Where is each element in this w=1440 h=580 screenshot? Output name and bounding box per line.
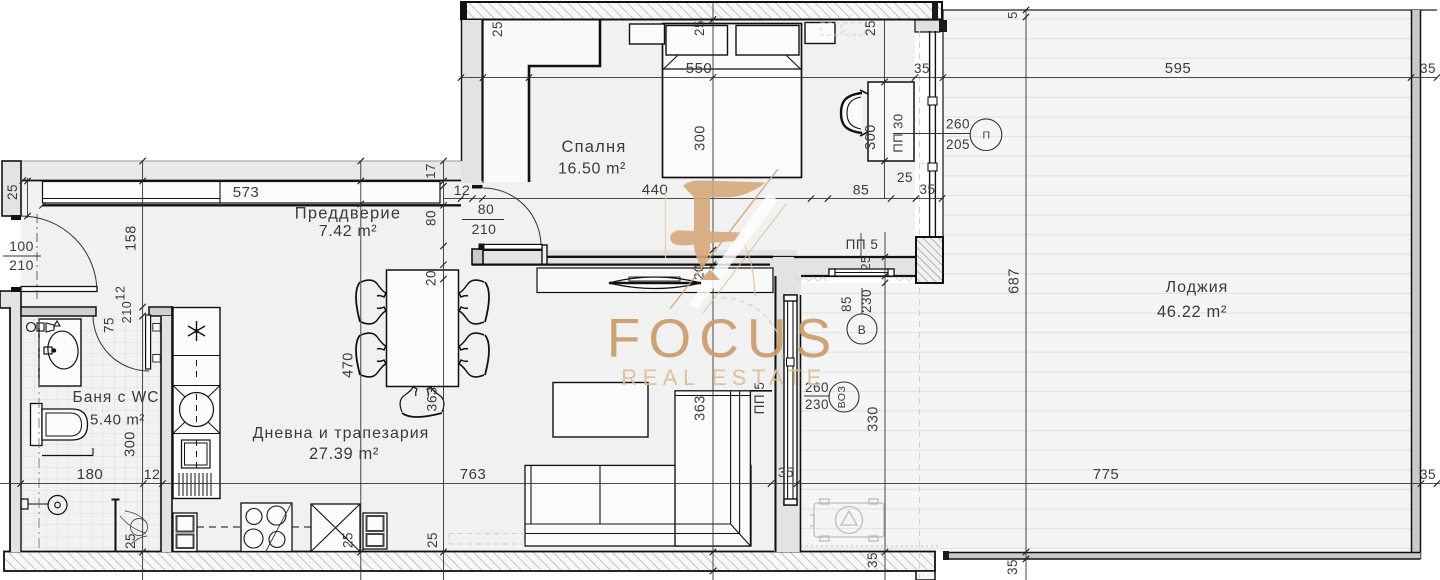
- svg-text:35: 35: [865, 552, 880, 568]
- svg-text:300: 300: [863, 124, 879, 150]
- svg-text:25: 25: [859, 256, 873, 271]
- svg-text:35: 35: [1420, 61, 1436, 76]
- svg-text:230: 230: [805, 397, 829, 412]
- svg-text:46.22 m²: 46.22 m²: [1157, 303, 1227, 321]
- svg-text:85: 85: [853, 182, 870, 198]
- svg-text:158: 158: [124, 225, 140, 251]
- svg-text:25: 25: [863, 20, 878, 36]
- svg-text:230: 230: [859, 289, 874, 313]
- svg-text:80: 80: [478, 201, 495, 217]
- svg-text:Спалня: Спалня: [562, 138, 627, 156]
- svg-text:330: 330: [866, 406, 882, 432]
- svg-text:ПП 30: ПП 30: [891, 113, 906, 152]
- svg-text:ВОЗ: ВОЗ: [836, 386, 848, 409]
- svg-text:440: 440: [642, 182, 669, 199]
- svg-text:210: 210: [120, 301, 134, 323]
- svg-text:20: 20: [424, 270, 439, 286]
- svg-text:550: 550: [686, 60, 713, 77]
- svg-text:12: 12: [114, 286, 128, 301]
- svg-text:300: 300: [693, 125, 709, 151]
- svg-text:Баня с WC: Баня с WC: [73, 389, 160, 406]
- svg-text:П: П: [982, 130, 990, 142]
- svg-text:25: 25: [123, 533, 138, 549]
- svg-text:5: 5: [1005, 11, 1020, 19]
- svg-text:85: 85: [839, 296, 854, 312]
- svg-text:FOCUS: FOCUS: [607, 307, 840, 369]
- svg-text:27.39 m²: 27.39 m²: [309, 445, 379, 463]
- svg-text:595: 595: [1165, 60, 1192, 77]
- svg-text:210: 210: [472, 221, 497, 237]
- svg-text:25: 25: [897, 170, 913, 185]
- svg-text:775: 775: [1093, 466, 1120, 483]
- svg-text:35: 35: [1005, 559, 1020, 575]
- svg-text:35: 35: [778, 465, 794, 480]
- svg-text:16.50 m²: 16.50 m²: [558, 161, 626, 178]
- svg-text:25: 25: [692, 20, 707, 36]
- svg-text:205: 205: [946, 137, 970, 152]
- svg-text:35: 35: [1420, 467, 1436, 482]
- svg-text:В: В: [858, 323, 867, 337]
- svg-text:12: 12: [144, 466, 161, 482]
- svg-text:ПП 5: ПП 5: [846, 237, 879, 252]
- svg-text:Лоджия: Лоджия: [1166, 279, 1229, 296]
- svg-text:363: 363: [424, 387, 440, 412]
- svg-text:260: 260: [946, 117, 970, 132]
- svg-text:25: 25: [490, 21, 505, 37]
- svg-text:25: 25: [425, 532, 440, 548]
- svg-text:763: 763: [460, 466, 487, 483]
- svg-text:75: 75: [102, 317, 117, 333]
- svg-text:100: 100: [9, 238, 34, 254]
- svg-text:80: 80: [424, 210, 439, 226]
- svg-text:25: 25: [341, 532, 356, 548]
- svg-text:35: 35: [914, 61, 930, 76]
- svg-text:7.42 m²: 7.42 m²: [319, 223, 378, 240]
- svg-text:300: 300: [123, 431, 139, 457]
- svg-text:180: 180: [77, 466, 104, 483]
- svg-text:REAL ESTATE: REAL ESTATE: [621, 365, 827, 390]
- svg-text:35: 35: [919, 182, 935, 197]
- svg-text:470: 470: [341, 352, 357, 378]
- svg-text:5.40 m²: 5.40 m²: [90, 412, 145, 429]
- svg-text:363: 363: [693, 395, 709, 421]
- svg-text:210: 210: [9, 257, 34, 273]
- svg-text:573: 573: [233, 184, 260, 201]
- svg-text:687: 687: [1007, 268, 1023, 294]
- svg-text:12: 12: [454, 182, 471, 198]
- svg-text:Преддверие: Преддверие: [295, 205, 401, 223]
- svg-text:17: 17: [423, 163, 438, 178]
- svg-text:Дневна и трапезария: Дневна и трапезария: [253, 425, 430, 442]
- svg-text:25: 25: [5, 184, 20, 200]
